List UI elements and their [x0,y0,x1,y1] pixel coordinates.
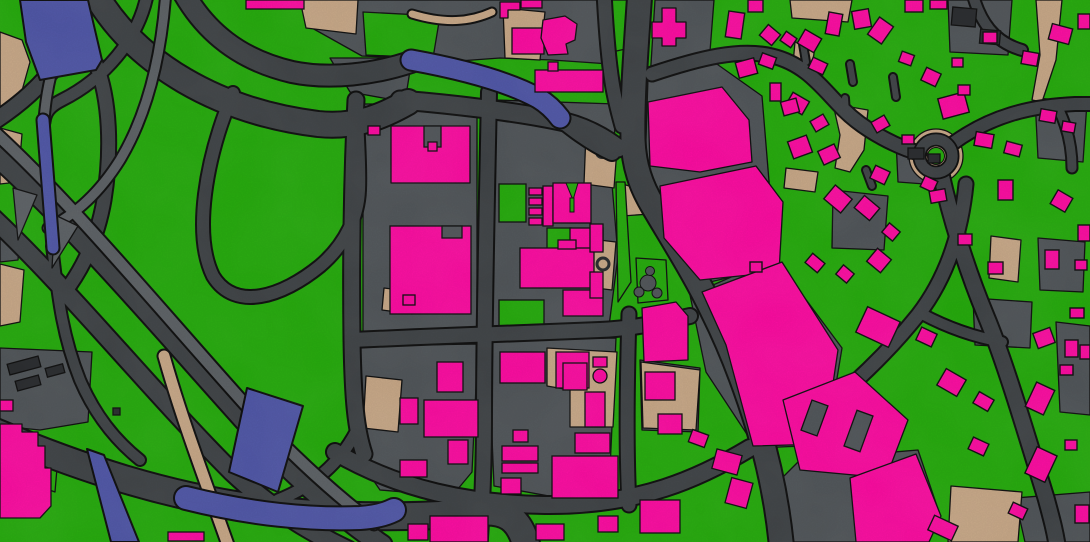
texture-mottle-overlay [0,0,1090,542]
map-viewport[interactable] [0,0,1090,542]
segmentation-map-canvas [0,0,1090,542]
